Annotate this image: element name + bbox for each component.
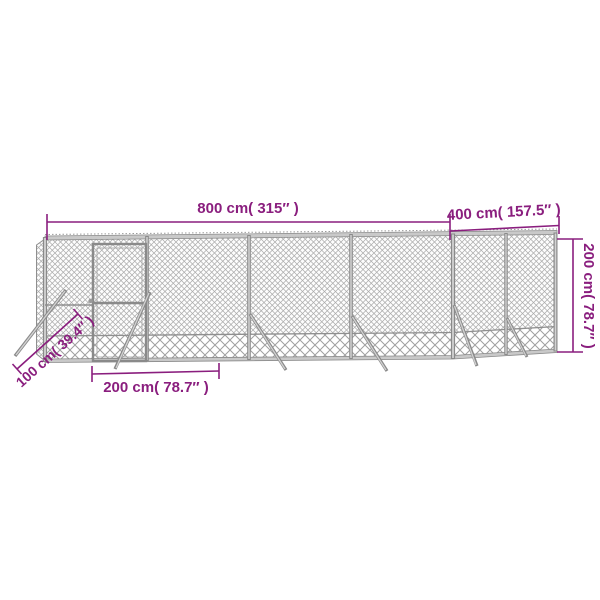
dimension-door-width: 200 cm( 78.7″ ) <box>92 363 219 396</box>
dimension-line <box>450 226 559 232</box>
dimension-door-width-label: 200 cm( 78.7″ ) <box>103 379 209 396</box>
dimension-length-label: 800 cm( 315″ ) <box>197 200 298 217</box>
fence-structure <box>15 229 557 371</box>
product-dimension-diagram: 800 cm( 315″ ) 400 cm( 157.5″ ) 200 cm( … <box>0 0 600 600</box>
dimension-height-label: 200 cm( 78.7″ ) <box>580 243 597 349</box>
dimension-depth-label: 400 cm( 157.5″ ) <box>446 201 561 224</box>
dimension-line <box>92 371 219 374</box>
dimension-depth: 400 cm( 157.5″ ) <box>446 201 561 234</box>
dimension-height: 200 cm( 78.7″ ) <box>557 239 597 352</box>
door-latch <box>88 299 92 303</box>
kennel-dimension-drawing: 800 cm( 315″ ) 400 cm( 157.5″ ) 200 cm( … <box>0 0 600 600</box>
